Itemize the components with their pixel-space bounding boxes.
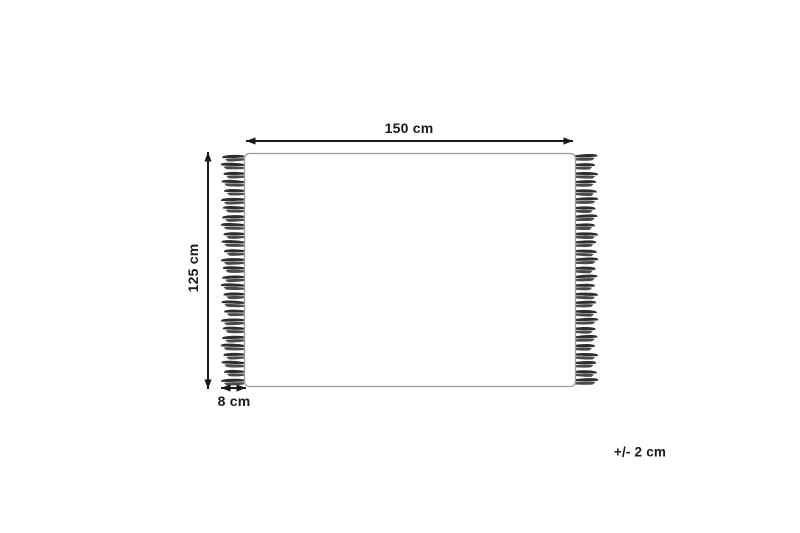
- tassel: [220, 343, 244, 350]
- tassel: [221, 378, 244, 385]
- tassel: [222, 335, 244, 342]
- width-dimension-label: 150 cm: [385, 120, 434, 136]
- tassel: [575, 172, 598, 179]
- tassel: [221, 180, 244, 187]
- tassel: [575, 180, 597, 187]
- tassel: [575, 214, 598, 221]
- tolerance-label: +/- 2 cm: [614, 445, 666, 460]
- tassel: [222, 215, 244, 222]
- tassel: [221, 360, 244, 367]
- rug-outline: [245, 154, 576, 387]
- tassel: [223, 353, 244, 360]
- tassel: [220, 283, 244, 290]
- tassel: [223, 292, 244, 299]
- tassel: [221, 318, 244, 325]
- tassel: [575, 274, 598, 281]
- tassel: [224, 249, 244, 256]
- height-dimension-label: 125 cm: [185, 244, 201, 293]
- tassel: [224, 310, 244, 317]
- tassel: [224, 189, 244, 196]
- tassel: [575, 240, 597, 247]
- tassel: [575, 318, 599, 325]
- tassel: [222, 206, 244, 213]
- tassel: [575, 370, 597, 377]
- tassel: [575, 189, 597, 196]
- tassel: [575, 266, 596, 273]
- fringe-dimension-label: 8 cm: [218, 393, 251, 409]
- tassel: [575, 378, 599, 385]
- tassel: [221, 198, 244, 205]
- tassel: [223, 172, 244, 179]
- tassel: [575, 327, 596, 334]
- tassel: [222, 154, 244, 161]
- tassel: [575, 353, 598, 360]
- tassel: [575, 163, 595, 170]
- tassel: [222, 326, 244, 333]
- tassel: [222, 266, 244, 273]
- tassel: [575, 344, 595, 351]
- tassel: [221, 240, 244, 247]
- tassel: [224, 370, 244, 377]
- dimension-diagram: 150 cm 125 cm 8 cm +/- 2 cm: [0, 0, 800, 533]
- tassel: [221, 300, 244, 307]
- tassel: [223, 232, 244, 239]
- tassel: [575, 292, 598, 299]
- tassel: [220, 162, 244, 169]
- tassel: [575, 361, 597, 368]
- tassel: [575, 154, 598, 161]
- tassel: [221, 258, 244, 265]
- tassel: [575, 301, 597, 308]
- tassel: [575, 257, 599, 264]
- tassel: [575, 249, 597, 256]
- tassel: [575, 284, 595, 291]
- tassel: [575, 310, 597, 317]
- rug-outline-drawing: [0, 0, 800, 533]
- tassel: [575, 223, 595, 230]
- tassel: [222, 275, 244, 282]
- tassel: [575, 335, 598, 342]
- tassel: [575, 232, 598, 239]
- tassel: [575, 206, 596, 213]
- tassel: [220, 223, 244, 230]
- tassel: [575, 197, 599, 204]
